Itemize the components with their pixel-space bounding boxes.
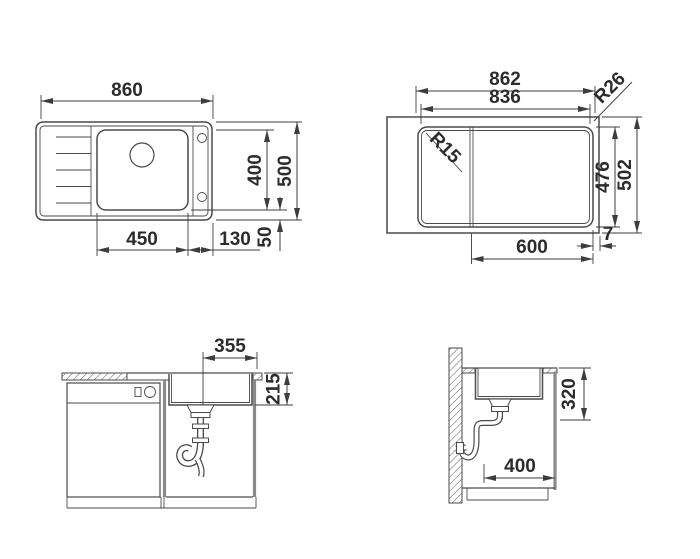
front-bowl-width-label: 355	[214, 336, 246, 357]
plan-sink-outline	[36, 122, 212, 220]
countertop-hatch-left	[62, 373, 127, 380]
side-drain-flange	[489, 399, 511, 407]
cabinet-width-label: 600	[516, 237, 548, 258]
front-sink-cabinet	[67, 380, 256, 508]
side-dimensions: 320 400	[484, 368, 591, 483]
front-dimensions: 355 215	[203, 336, 293, 405]
outer-depth-label: 502	[615, 159, 636, 191]
plan-rim-right-label: 130	[219, 229, 251, 250]
outer-radius-label: R26	[590, 68, 629, 107]
front-basin	[169, 352, 252, 405]
edge-offset-label: 7	[603, 224, 614, 245]
side-basin	[476, 369, 543, 400]
tap-hole-top	[198, 134, 207, 143]
side-hatch-left	[462, 368, 475, 373]
front-countertop	[62, 373, 262, 380]
wall-section	[449, 348, 462, 503]
plan-bowl	[97, 130, 188, 210]
front-bowl-height-label: 215	[264, 373, 285, 405]
plan-dimensions: 860 400 500 450 130 50	[41, 80, 302, 256]
countertop-hatch-right	[253, 373, 262, 380]
plan-bowl-depth-label: 400	[245, 154, 266, 186]
plan-view: 860 400 500 450 130 50	[36, 80, 302, 256]
drawing-page: 860 400 500 450 130 50	[0, 0, 700, 559]
plan-width-label: 860	[111, 80, 143, 101]
dishwasher-button-rect	[135, 388, 141, 397]
wall-outlet-nut	[457, 443, 464, 454]
plan-depth-label: 500	[275, 155, 296, 187]
cutout-radius-label: R15	[425, 128, 465, 168]
dishwasher-button-knob	[145, 387, 156, 398]
sink-technical-drawing: 860 400 500 450 130 50	[0, 0, 700, 559]
drain-hole	[130, 143, 154, 167]
cutout-width-label: 836	[489, 87, 521, 108]
side-view: 320 400	[449, 348, 591, 503]
plan-bowl-width-label: 450	[126, 229, 158, 250]
plan-rim-offset-label: 50	[255, 226, 276, 247]
cutout-outline	[387, 117, 599, 233]
cutout-dimensions: 862 836 R26 R15 476 502 7 60	[416, 68, 642, 264]
front-trap	[180, 405, 214, 477]
drain-flange	[187, 405, 214, 413]
side-cabinet-depth-label: 400	[504, 456, 536, 477]
side-trap	[456, 399, 512, 457]
drainboard-grooves	[56, 137, 91, 203]
drain-nut	[191, 413, 210, 418]
dishwasher-front	[67, 383, 160, 497]
tap-hole-bottom	[198, 193, 207, 202]
cutout-view: 862 836 R26 R15 476 502 7 60	[387, 68, 642, 264]
side-drain-nut	[492, 407, 509, 412]
front-view: 355 215	[62, 336, 293, 508]
cutout-depth-label: 476	[593, 161, 614, 193]
side-clearance-height-label: 320	[559, 378, 580, 410]
side-hatch-right	[543, 368, 557, 373]
